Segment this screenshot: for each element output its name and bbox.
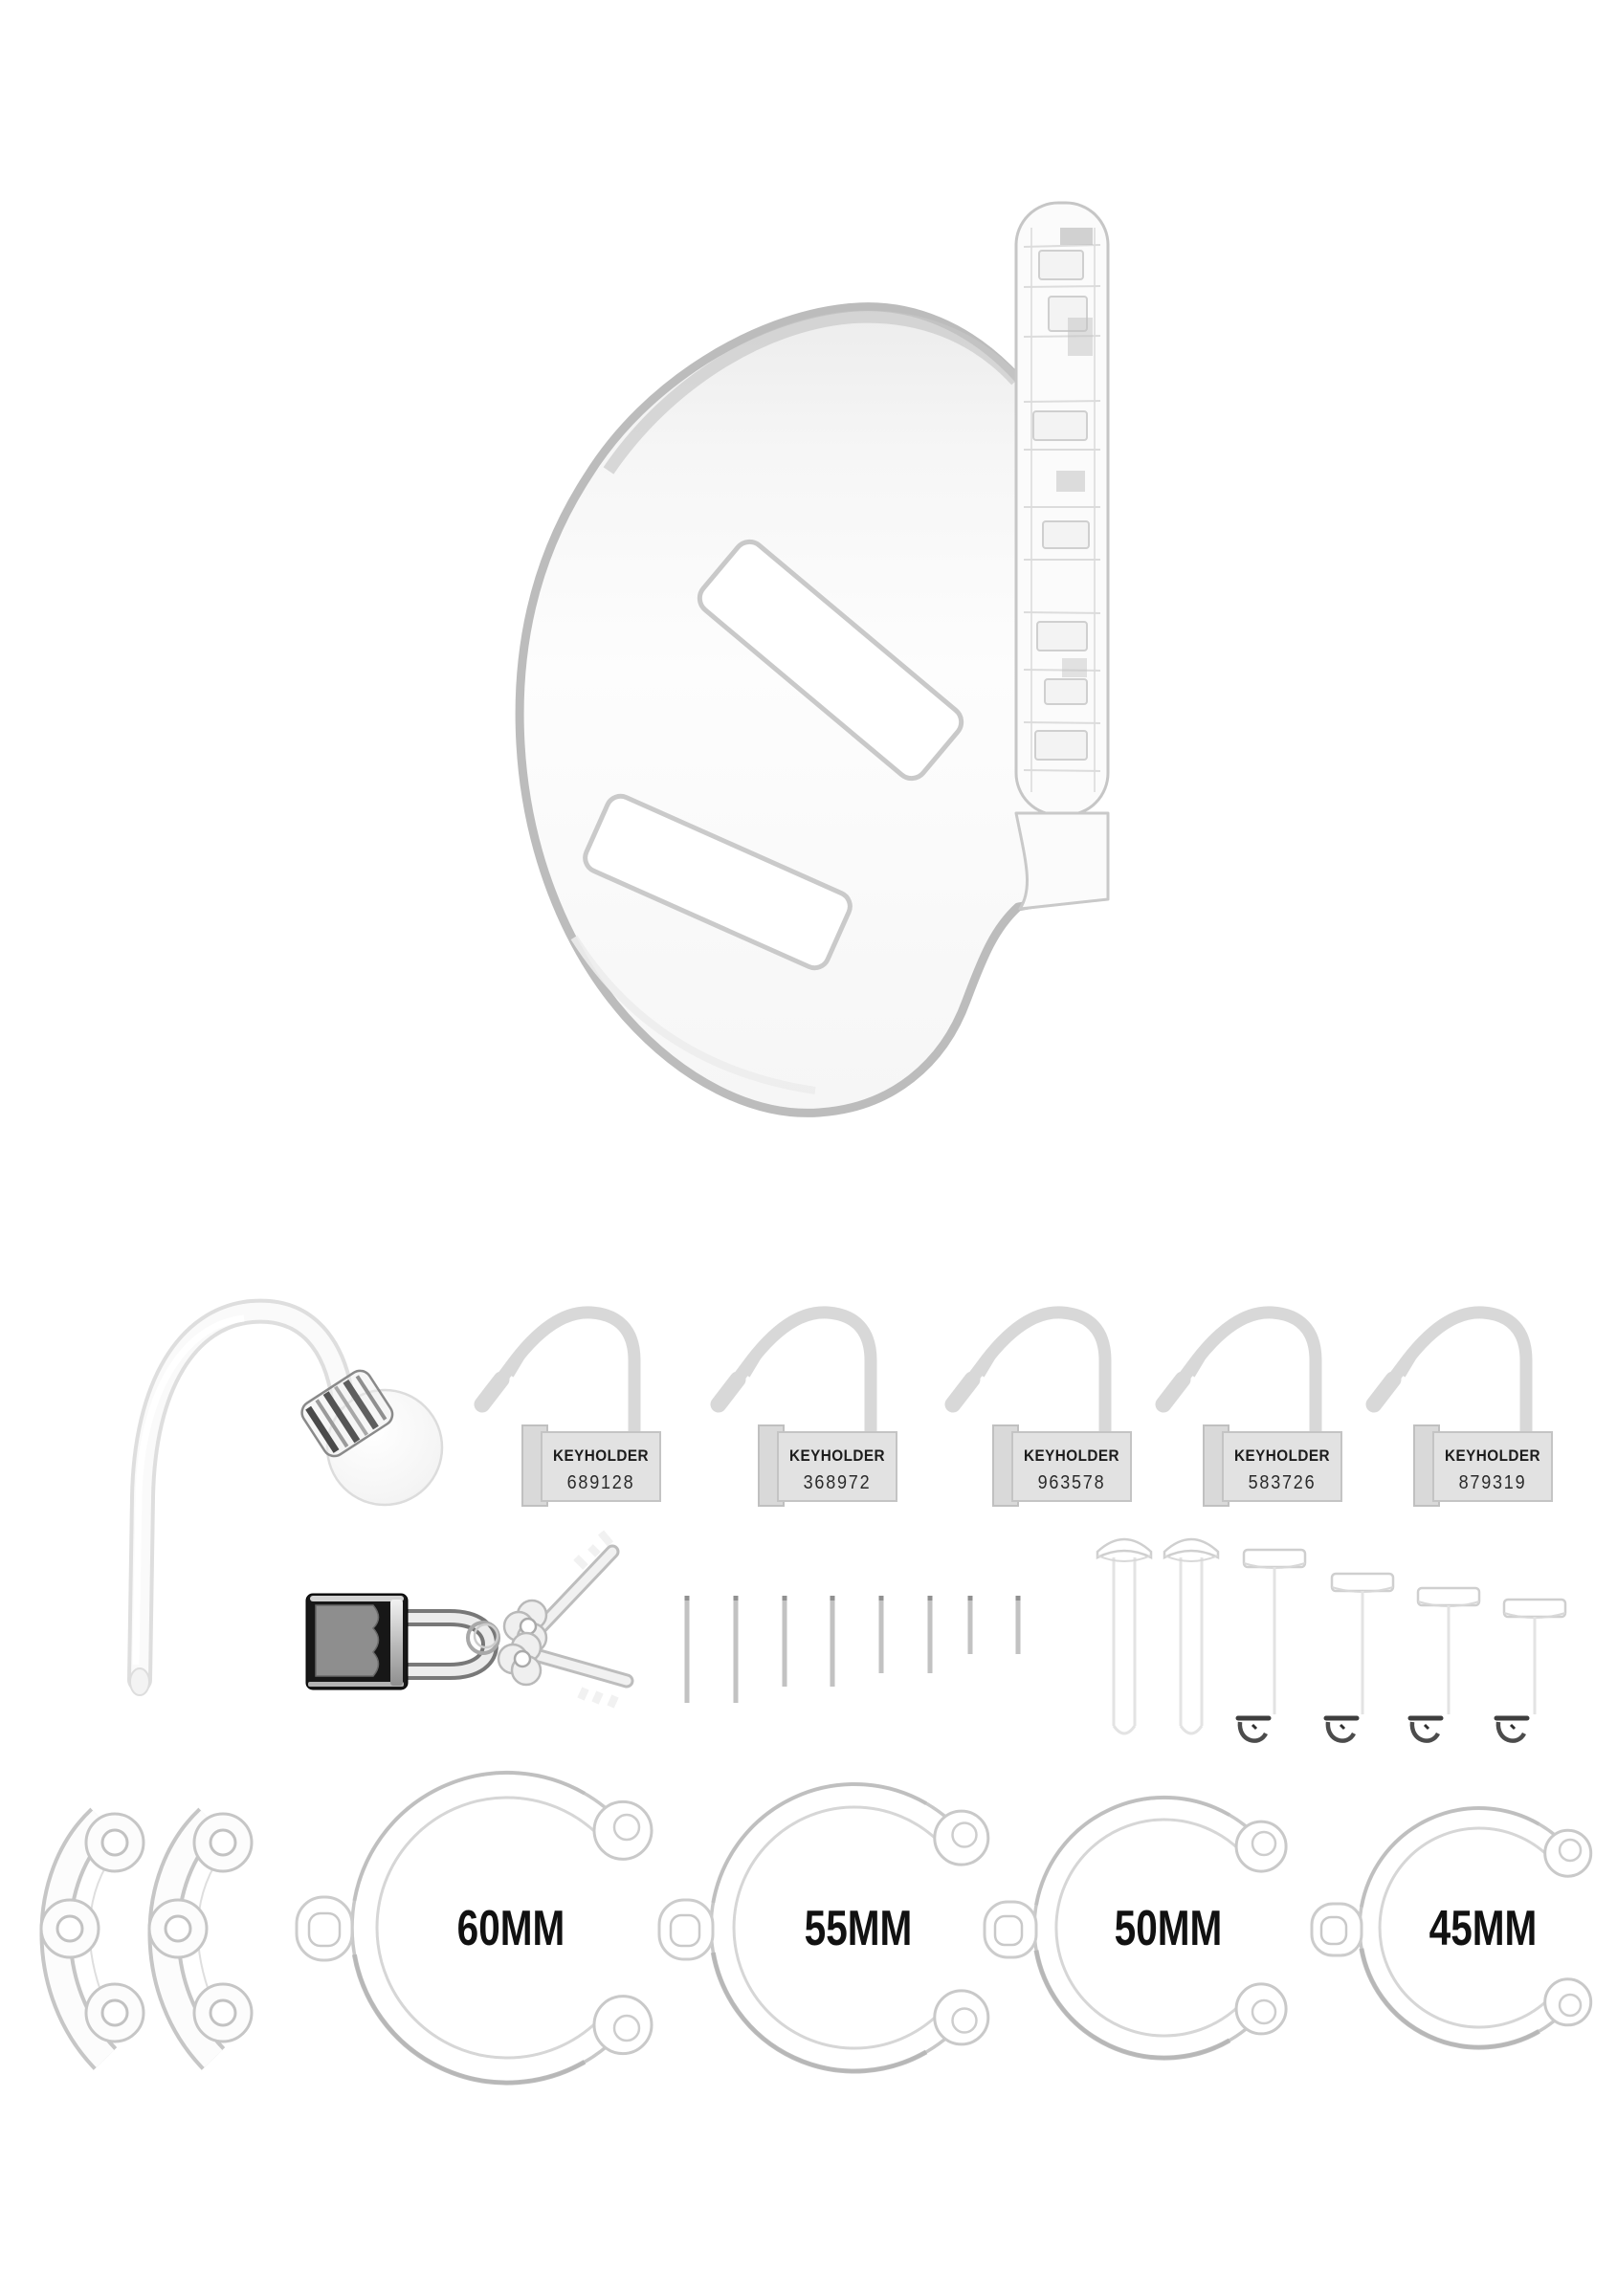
lock-label: KEYHOLDER — [1445, 1446, 1540, 1465]
lock-number: 879319 — [1459, 1472, 1527, 1493]
size-ring-55mm: 55MM — [659, 1784, 988, 2071]
size-ring-60mm: 60MM — [297, 1773, 652, 2083]
keyholder-lock-2: KEYHOLDER 368972 — [719, 1313, 897, 1506]
locking-pin-dome-2 — [1164, 1539, 1218, 1733]
product-kit-image: KEYHOLDER 689128 KEYHOLDER 368972 KEYHOL… — [0, 0, 1617, 2296]
lock-label: KEYHOLDER — [553, 1446, 649, 1465]
cage-back-ring — [1016, 203, 1108, 909]
lock-number: 963578 — [1038, 1472, 1106, 1493]
spacer-1 — [41, 1814, 144, 2059]
ring-size-label: 45MM — [1429, 1900, 1538, 1955]
lock-label: KEYHOLDER — [1234, 1446, 1330, 1465]
lock-number: 583726 — [1249, 1472, 1317, 1493]
locking-pin-tips — [1238, 1718, 1527, 1741]
locking-pin-flat-2 — [1332, 1574, 1393, 1714]
cage-body — [520, 307, 1062, 1114]
key-lower — [498, 1633, 627, 1707]
lock-label: KEYHOLDER — [789, 1446, 885, 1465]
metal-padlock-with-keys — [306, 1533, 627, 1707]
lock-number: 368972 — [804, 1472, 872, 1493]
spacer-pin-set — [685, 1596, 1021, 1703]
keyholder-lock-3: KEYHOLDER 963578 — [953, 1313, 1131, 1506]
ring-size-label: 55MM — [805, 1900, 913, 1955]
keyholder-lock-5: KEYHOLDER 879319 — [1374, 1313, 1552, 1506]
locking-pin-flat-1 — [1244, 1550, 1305, 1714]
product-photo: KEYHOLDER 689128 KEYHOLDER 368972 KEYHOL… — [0, 0, 1617, 2296]
chastity-cage — [520, 203, 1108, 1113]
ring-size-label: 60MM — [457, 1900, 565, 1955]
locking-pin-dome-1 — [1097, 1539, 1151, 1733]
size-ring-50mm: 50MM — [985, 1798, 1286, 2058]
padlock-front-panel — [316, 1605, 379, 1676]
locking-pin-set — [1097, 1539, 1565, 1741]
locking-pin-flat-3 — [1418, 1588, 1479, 1714]
keyholder-lock-4: KEYHOLDER 583726 — [1163, 1313, 1341, 1506]
keyholder-lock-1: KEYHOLDER 689128 — [482, 1313, 660, 1506]
lock-label: KEYHOLDER — [1024, 1446, 1119, 1465]
ring-size-label: 50MM — [1115, 1900, 1223, 1955]
locking-pin-flat-4 — [1504, 1600, 1565, 1714]
lock-number: 689128 — [567, 1472, 635, 1493]
size-ring-45mm: 45MM — [1312, 1808, 1591, 2047]
spacer-2 — [149, 1814, 252, 2059]
